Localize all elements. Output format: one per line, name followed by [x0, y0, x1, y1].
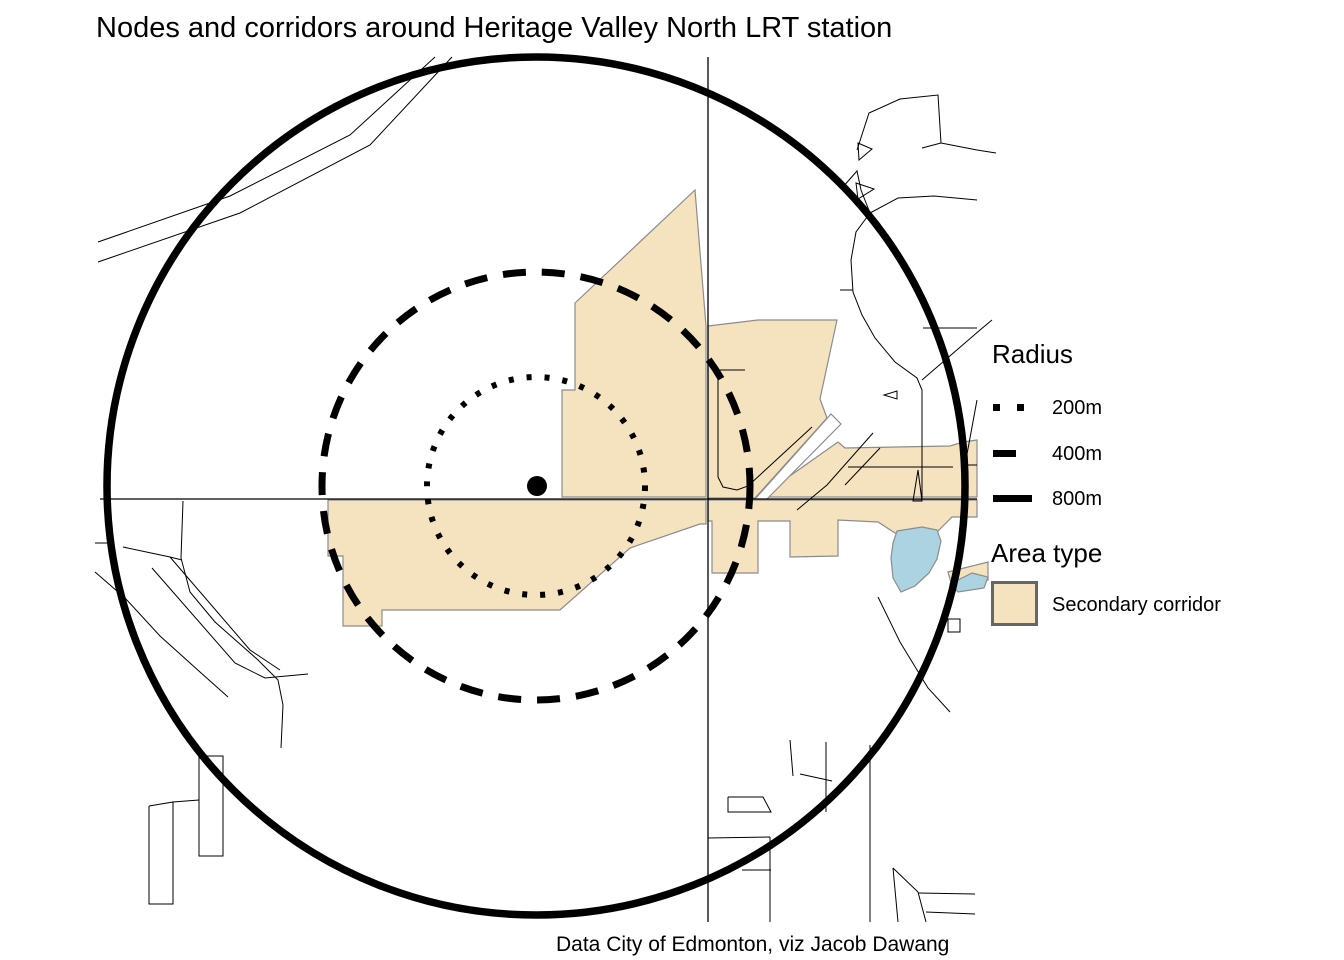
- legend-label-200m: 200m: [1052, 397, 1102, 420]
- road-28: [728, 797, 771, 812]
- road-loop-triangle-2: [856, 183, 874, 199]
- dotted-line-sample: [993, 404, 1033, 411]
- road-3: [941, 143, 996, 153]
- road-34: [893, 868, 898, 922]
- road-loop-triangle-3: [884, 391, 897, 399]
- page-title: Nodes and corridors around Heritage Vall…: [96, 11, 892, 45]
- dashed-line-sample: [993, 450, 1033, 457]
- legend-item-800m: [993, 487, 1033, 509]
- legend-area-type-title: Area type: [991, 538, 1102, 569]
- road-7: [870, 196, 977, 213]
- secondary-corridor-swatch: [991, 581, 1038, 626]
- road-26: [173, 800, 199, 802]
- road-2: [857, 95, 941, 150]
- road-33: [800, 774, 832, 781]
- road-35: [893, 868, 926, 922]
- road-23: [170, 557, 280, 670]
- road-25: [149, 802, 173, 904]
- road-29: [708, 837, 770, 838]
- solid-line-sample: [993, 495, 1033, 502]
- road-36: [918, 893, 975, 894]
- legend-label-secondary-corridor: Secondary corridor: [1052, 594, 1221, 617]
- legend-radius-title: Radius: [992, 339, 1073, 370]
- pond: [891, 527, 941, 592]
- legend-item-400m: [993, 442, 1033, 464]
- road-22: [152, 568, 308, 678]
- corridor-west-strip: [328, 500, 706, 626]
- corridor-west-upper: [562, 190, 706, 497]
- road-19: [95, 572, 228, 697]
- road-20: [181, 501, 283, 748]
- road-21: [123, 547, 182, 560]
- caption: Data City of Edmonton, viz Jacob Dawang: [556, 933, 949, 957]
- road-39: [948, 619, 960, 632]
- road-loop-triangle-1: [858, 143, 872, 160]
- legend-label-400m: 400m: [1052, 443, 1102, 466]
- legend-label-800m: 800m: [1052, 488, 1102, 511]
- station-dot: [527, 476, 547, 496]
- road-27: [790, 740, 793, 776]
- legend-item-200m: [993, 396, 1033, 418]
- figure-canvas: Nodes and corridors around Heritage Vall…: [0, 0, 1344, 960]
- road-37: [926, 912, 975, 914]
- legend: Radius 200m 400m 800m Area type Secondar…: [985, 334, 1285, 644]
- road-1: [98, 57, 452, 262]
- legend-item-secondary-corridor: [991, 581, 1038, 625]
